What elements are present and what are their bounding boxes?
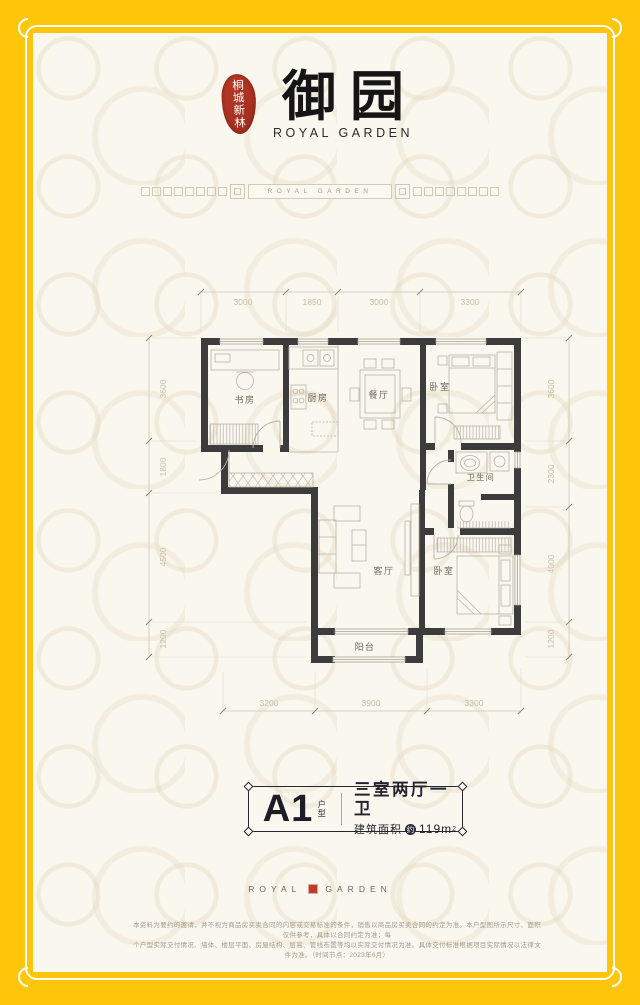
dim-left-1: 3600 (158, 379, 168, 398)
disclaimer-line-1: 本资料为要约的邀请，并不视为商品房买卖合同的内容或交易标准的条件，销售以商品房买… (133, 921, 541, 941)
room-label-bedroom-bottom: 卧室 (433, 565, 454, 577)
room-label-study: 书房 (234, 394, 255, 406)
dim-left-3: 4500 (158, 547, 168, 566)
rosette-left (230, 184, 245, 199)
dim-right-4: 1200 (546, 629, 556, 648)
dim-right-3: 4000 (546, 554, 556, 573)
brand-right: GARDEN (325, 884, 391, 894)
unit-code-block: A1 户型 (249, 789, 341, 829)
dim-top-4: 3300 (461, 297, 480, 307)
brand-logo: 桐城新林 御园 ROYAL GARDEN (33, 67, 607, 140)
room-label-bedroom-top: 卧室 (429, 381, 450, 393)
red-seal: 桐城新林 (220, 73, 257, 135)
logo-title-block: 御园 ROYAL GARDEN (268, 67, 418, 140)
brand-left: ROYAL (248, 884, 301, 894)
logo-subtitle: ROYAL GARDEN (273, 126, 413, 140)
logo-title: 御园 (268, 67, 418, 125)
windows (220, 339, 520, 662)
ornament-chain-left (141, 187, 227, 196)
rosette-right (395, 184, 410, 199)
disclaimer-line-2: 个户型实际交付情况、墙体、楼层平面、房屋结构、层高、管线布置等均以实际交付情况为… (133, 941, 541, 961)
floor-plan: 3000 1850 3000 3300 3200 3900 3300 3600 … (128, 272, 583, 724)
band-bar: ROYAL GARDEN (248, 184, 392, 199)
room-label-living: 客厅 (373, 565, 394, 577)
dim-left-2: 1800 (158, 457, 168, 476)
dim-left-4: 1200 (158, 629, 168, 648)
unit-code: A1 (263, 789, 314, 829)
poster-page: 桐城新林 御园 ROYAL GARDEN ROYAL GARDEN (0, 0, 640, 1005)
room-label-bathroom: 卫生间 (467, 472, 496, 482)
brand-seal-icon (308, 884, 318, 894)
seal-text: 桐城新林 (230, 78, 249, 129)
dim-bottom-3: 3300 (465, 698, 484, 708)
unit-info-box: A1 户型 三室两厅一卫 建筑面积 约 119m2 (248, 786, 463, 832)
ornament-chain-right (413, 187, 499, 196)
unit-area-value: 119m (419, 822, 452, 836)
unit-area-exponent: 2 (452, 826, 457, 833)
unit-area-prefix: 建筑面积 (354, 821, 402, 837)
dim-right-1: 3600 (546, 379, 556, 398)
unit-detail-block: 三室两厅一卫 建筑面积 约 119m2 (342, 781, 462, 837)
furniture (210, 345, 513, 625)
disclaimer: 本资料为要约的邀请，并不视为商品房买卖合同的内容或交易标准的条件，销售以商品房买… (133, 921, 541, 961)
content-layer: 桐城新林 御园 ROYAL GARDEN ROYAL GARDEN (33, 33, 607, 972)
room-label-kitchen: 厨房 (307, 392, 328, 404)
room-label-balcony: 阳台 (354, 641, 375, 653)
approx-badge: 约 (405, 824, 416, 835)
dim-bottom-1: 3200 (260, 698, 279, 708)
dim-top-3: 3000 (370, 297, 389, 307)
unit-layout: 三室两厅一卫 (354, 781, 462, 819)
unit-area: 建筑面积 约 119m2 (354, 821, 462, 837)
dim-right-2: 2300 (546, 464, 556, 483)
dim-bottom-2: 3900 (362, 698, 381, 708)
dim-top-1: 3000 (234, 297, 253, 307)
band-label: ROYAL GARDEN (268, 188, 373, 195)
unit-code-suffix: 户型 (316, 800, 327, 818)
room-label-dining: 餐厅 (368, 389, 389, 401)
dim-top-2: 1850 (303, 297, 322, 307)
footer-brand: ROYAL GARDEN (33, 884, 607, 894)
ornament-band: ROYAL GARDEN (141, 183, 499, 199)
